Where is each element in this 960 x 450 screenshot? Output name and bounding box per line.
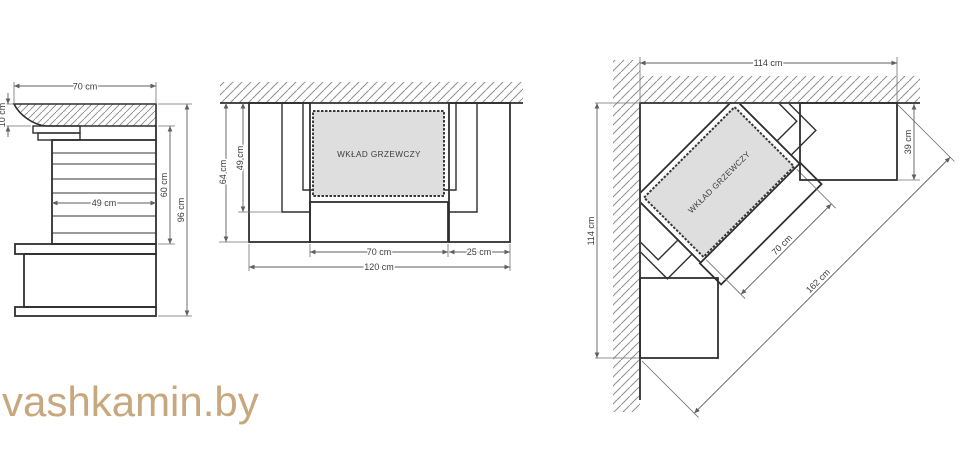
top-wall-hatching [640, 76, 920, 103]
top-right-column [800, 103, 897, 180]
depth-total-dimension: 64 cm [218, 103, 249, 242]
technical-drawing-canvas: 70 cm 10 cm 49 cm 6 [0, 0, 960, 450]
dim-wall-top: 114 cm [754, 58, 783, 68]
left-column [249, 103, 315, 242]
dim-slat-width: 49 cm [92, 198, 117, 208]
heating-insert-label: WKŁAD GRZEWCZY [337, 150, 421, 159]
body-slats [52, 126, 156, 244]
dim-total-height: 96 cm [176, 198, 186, 223]
dim-total-width: 120 cm [364, 262, 394, 272]
watermark-logo: vashkamin.by [2, 381, 259, 423]
column-width-dimension: 25 cm [449, 244, 510, 257]
mantel-shelf [14, 104, 156, 126]
depth-inner-dimension: 49 cm [235, 103, 282, 212]
opening-width-dimension: 70 cm [310, 244, 448, 257]
dim-inner-height: 60 cm [159, 173, 169, 198]
corner-plan-view: 114 cm 114 cm WKŁAD GRZEWCZY [557, 20, 954, 417]
right-column [443, 103, 510, 242]
dim-depth-inner: 49 cm [235, 146, 245, 171]
dim-column-depth: 39 cm [903, 130, 913, 155]
slat-width-dimension: 49 cm [52, 198, 156, 208]
width-top-dimension: 70 cm [14, 82, 156, 104]
wall-hatching [220, 82, 523, 103]
dim-front-total: 162 cm [804, 267, 832, 295]
dim-shelf-thickness: 10 cm [0, 103, 7, 128]
dim-opening-width: 70 cm [367, 247, 392, 257]
crown-molding [33, 126, 80, 140]
side-view: 70 cm 10 cm 49 cm 6 [0, 82, 192, 317]
total-height-dimension: 96 cm [158, 104, 192, 316]
dim-depth-total: 64 cm [218, 160, 228, 185]
left-wall-hatching [613, 60, 640, 412]
dim-wall-left: 114 cm [586, 217, 596, 246]
inner-height-dimension: 60 cm [158, 126, 175, 244]
front-plan-view: WKŁAD GRZEWCZY 64 cm 49 cm 70 cm 25 cm 1… [218, 82, 523, 272]
dim-width-top: 70 cm [73, 82, 98, 92]
dim-column-width: 25 cm [467, 247, 492, 257]
bottom-left-column [640, 278, 718, 358]
hearth-base [15, 244, 156, 316]
hearth-platform [310, 202, 448, 242]
